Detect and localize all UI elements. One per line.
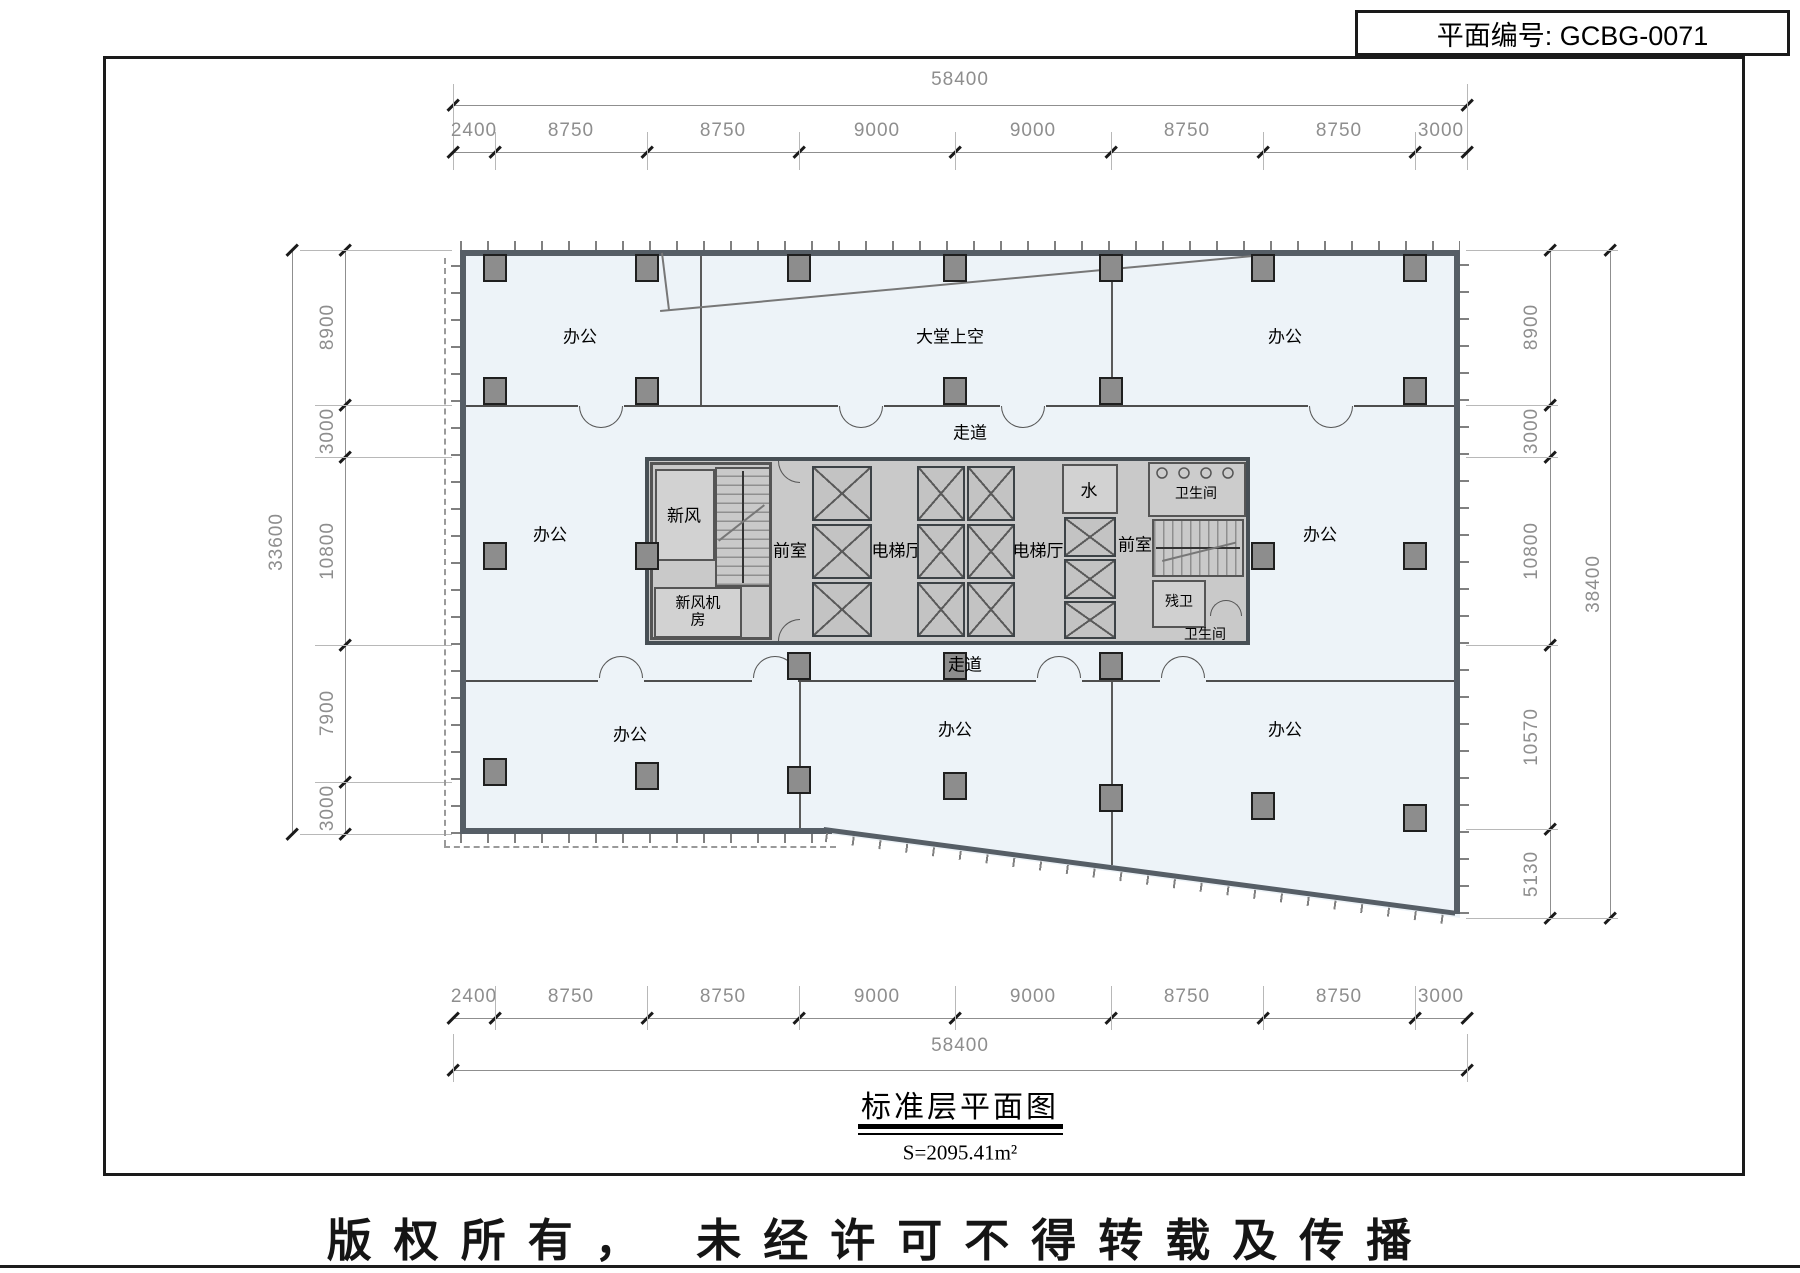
copyright-notice: 版权所有， 未经许可不得转载及传播 — [327, 1204, 1434, 1269]
floor-area-label: S=2095.41m² — [903, 1141, 1017, 1166]
room-label-office: 办公 — [563, 323, 597, 348]
room-label-elevator-hall-east: 电梯厅 — [1013, 537, 1064, 562]
dim-total-bottom: 58400 — [931, 1035, 989, 1057]
room-label-water: 水 — [1081, 477, 1098, 502]
elevator-shaft — [812, 582, 872, 637]
drawing-sheet: 平面编号: GCBG-0071 58400 2400 8750 8750 900… — [0, 0, 1800, 1273]
dim-total-right: 38400 — [1583, 555, 1605, 613]
room-label-elevator-hall-west: 电梯厅 — [872, 537, 923, 562]
elevator-shaft — [917, 582, 965, 637]
sheet-title: 标准层平面图 — [861, 1082, 1059, 1126]
plan-number-box: 平面编号: GCBG-0071 — [1355, 10, 1790, 56]
room-label-toilet-south: 卫生间 — [1184, 624, 1226, 644]
elevator-shaft — [1064, 601, 1116, 639]
elevator-shaft — [1064, 517, 1116, 557]
property-line-bottom — [444, 846, 836, 848]
room-label-office: 办公 — [938, 716, 972, 741]
elevator-shaft — [967, 582, 1015, 637]
room-label-lobby-void: 大堂上空 — [916, 323, 984, 348]
property-line-left — [444, 258, 446, 846]
room-label-fresh-air: 新风 — [667, 502, 701, 527]
room-label-office: 办公 — [613, 721, 647, 746]
page-bottom-rule — [0, 1265, 1800, 1268]
room-label-anteroom-east: 前室 — [1118, 531, 1152, 556]
room-label-toilet-north: 卫生间 — [1175, 483, 1217, 503]
elevator-shaft — [812, 466, 872, 521]
elevator-shaft — [1064, 559, 1116, 599]
room-label-fresh-air-plant: 新风机房 — [672, 596, 724, 629]
room-label-office: 办公 — [1268, 716, 1302, 741]
sink-row — [1154, 466, 1242, 480]
elevator-shaft — [967, 524, 1015, 579]
title-underline — [858, 1124, 1063, 1129]
elevator-shaft — [917, 524, 965, 579]
dim-total-top: 58400 — [931, 69, 989, 91]
room-label-anteroom-west: 前室 — [773, 537, 807, 562]
dim-total-left: 33600 — [266, 513, 288, 571]
room-label-accessible-toilet: 残卫 — [1165, 591, 1193, 611]
elevator-shaft — [812, 524, 872, 579]
room-label-corridor-north: 走道 — [953, 419, 987, 444]
elevator-shaft — [967, 466, 1015, 521]
room-label-corridor-south: 走道 — [948, 651, 982, 676]
plan-number-label: 平面编号: GCBG-0071 — [1437, 14, 1709, 53]
elevator-shaft — [917, 466, 965, 521]
room-label-office: 办公 — [533, 521, 567, 546]
room-label-office: 办公 — [1268, 323, 1302, 348]
room-label-office: 办公 — [1303, 521, 1337, 546]
